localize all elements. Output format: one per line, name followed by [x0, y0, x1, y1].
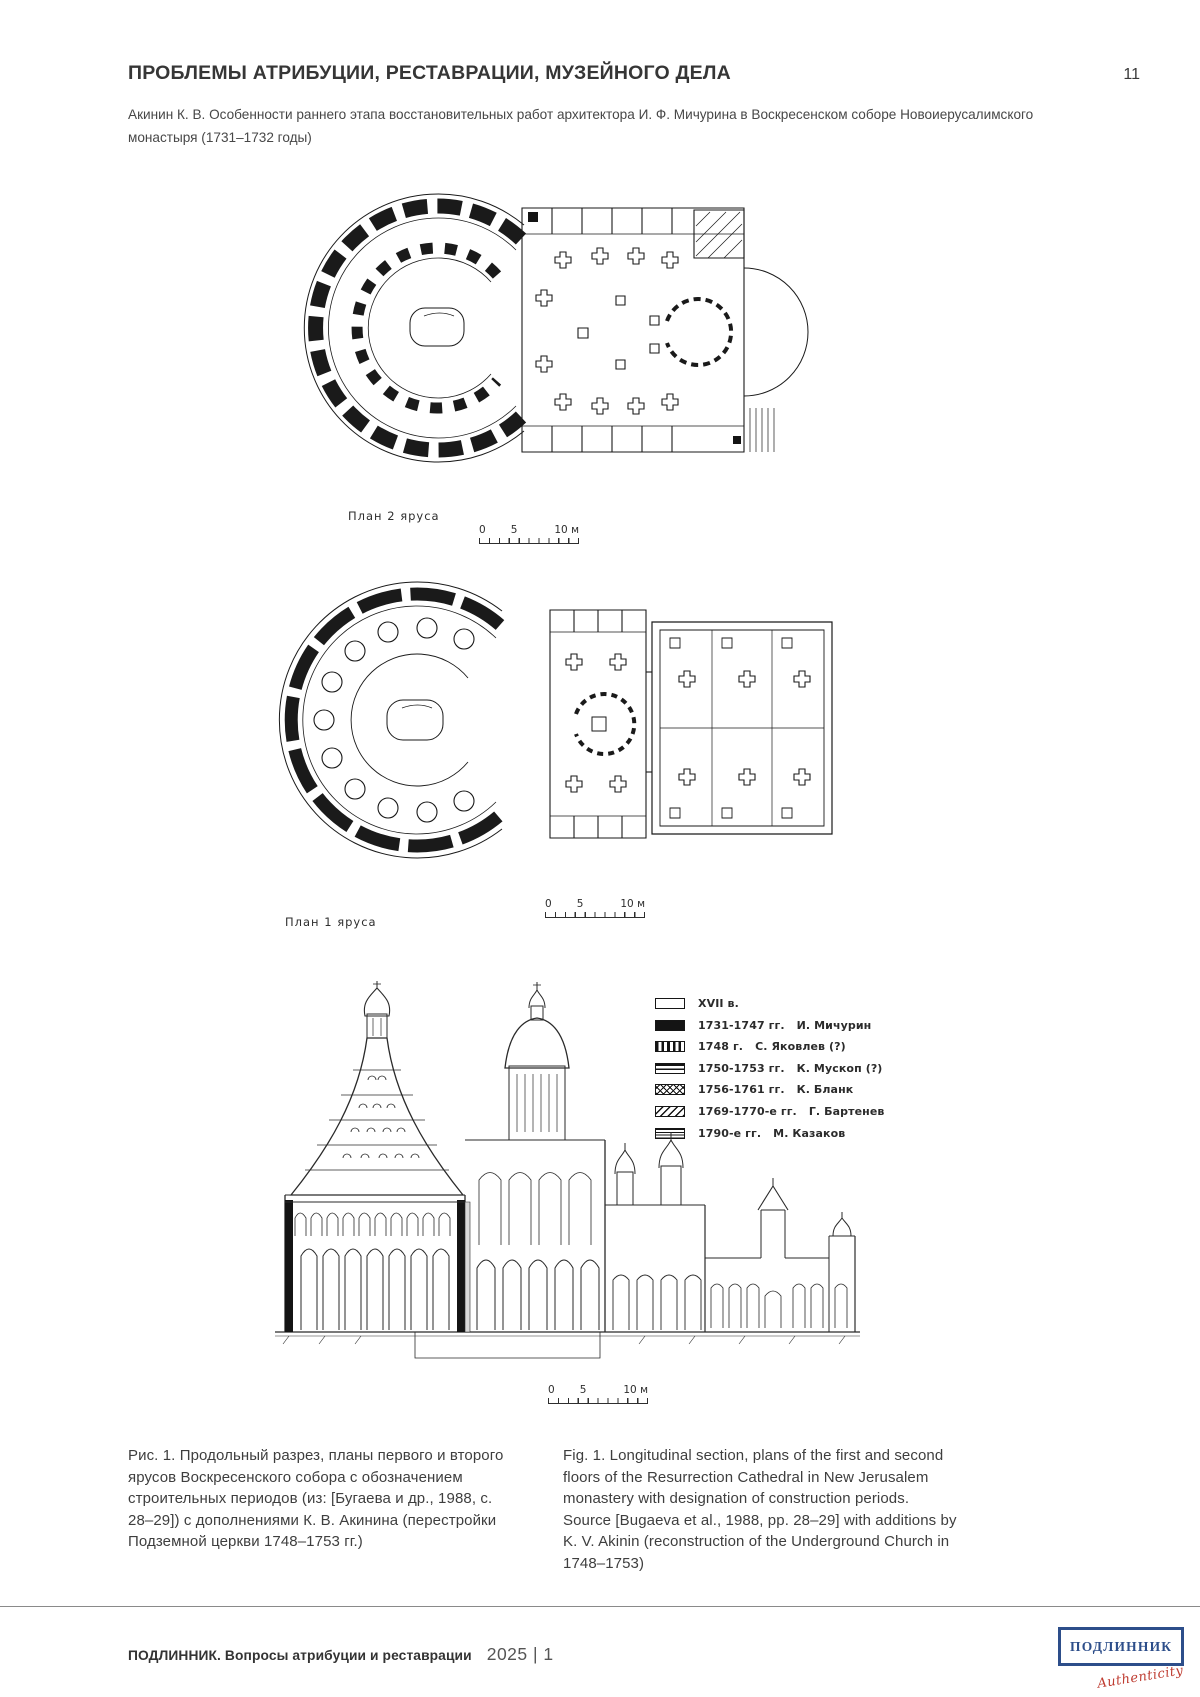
side-domes-section: [605, 1132, 705, 1332]
plan-2-drawing: [278, 168, 818, 478]
scale-ticks: [479, 538, 579, 544]
figure-caption-russian: Рис. 1. Продольный разрез, планы первого…: [128, 1445, 510, 1553]
longitudinal-section-drawing: [265, 980, 875, 1380]
scale-zero: 0: [545, 899, 552, 910]
plan-1-drawing: [252, 552, 852, 892]
journal-title: ПОДЛИННИК. Вопросы атрибуции и реставрац…: [128, 1648, 472, 1663]
wall-section: [705, 1178, 855, 1332]
issue-number: 2025 | 1: [487, 1644, 554, 1665]
figure-caption-english: Fig. 1. Longitudinal section, plans of t…: [563, 1445, 959, 1575]
scale-ten: 10 м: [623, 1385, 648, 1396]
scale-zero: 0: [548, 1385, 555, 1396]
section-scalebar: 0 5 10 м: [548, 1385, 648, 1404]
plan-1-label: План 1 яруса: [285, 915, 377, 929]
logo-script-text: Authenticity: [1097, 1663, 1185, 1691]
scale-five: 5: [577, 899, 584, 910]
footer-divider: [0, 1606, 1200, 1607]
rotunda-plan1: [279, 582, 502, 858]
scale-ten: 10 м: [620, 899, 645, 910]
scale-five: 5: [511, 525, 518, 536]
journal-page: ПРОБЛЕМЫ АТРИБУЦИИ, РЕСТАВРАЦИИ, МУЗЕЙНО…: [0, 0, 1200, 1697]
article-reference: Акинин К. В. Особенности раннего этапа в…: [128, 104, 1043, 150]
scale-ticks: [545, 912, 645, 918]
piers-plan1: [566, 654, 810, 792]
logo-text: ПОДЛИННИК: [1070, 1639, 1172, 1654]
piers-plan2: [528, 212, 741, 444]
plan-2-scalebar: 0 5 10 м: [479, 525, 579, 544]
nave-plan1: [550, 610, 652, 838]
rotunda-plan2: [304, 194, 524, 462]
scale-ten: 10 м: [554, 525, 579, 536]
scale-five: 5: [580, 1385, 587, 1396]
main-dome-section: [465, 982, 605, 1332]
plan-1-scalebar: 0 5 10 м: [545, 899, 645, 918]
scale-zero: 0: [479, 525, 486, 536]
rotunda-section: [285, 981, 465, 1332]
scale-ticks: [548, 1398, 648, 1404]
logo-stamp-box: ПОДЛИННИК: [1058, 1627, 1184, 1666]
podlinnik-logo: ПОДЛИННИК Authenticity: [1058, 1627, 1180, 1687]
ground: [275, 1332, 860, 1358]
page-number: 11: [1080, 66, 1140, 84]
nave-plan2: [522, 208, 808, 452]
section-header-title: ПРОБЛЕМЫ АТРИБУЦИИ, РЕСТАВРАЦИИ, МУЗЕЙНО…: [128, 62, 1028, 85]
plan-2-label: План 2 яруса: [348, 509, 440, 523]
annex-plan1: [652, 622, 832, 834]
footer: ПОДЛИННИК. Вопросы атрибуции и реставрац…: [128, 1644, 554, 1665]
